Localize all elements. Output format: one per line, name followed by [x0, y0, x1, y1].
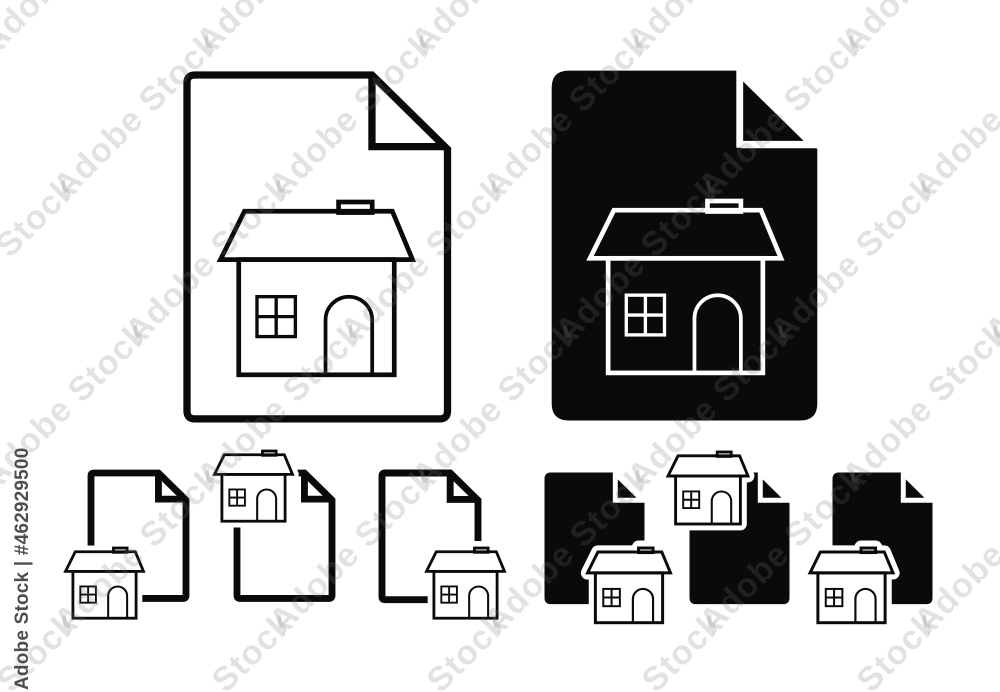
folded-corner-icon	[760, 473, 787, 500]
house-halo	[66, 547, 144, 618]
icon-file-house-outline-small-house-top-left	[215, 450, 333, 598]
house-icon	[221, 202, 413, 375]
icon-file-house-solid-large	[553, 72, 816, 419]
attribution-text: Adobe Stock | #462929500	[12, 448, 34, 690]
icon-file-house-solid-small-house-bottom-right	[545, 473, 671, 623]
icon-file-house-solid-small-house-bottom-left	[810, 473, 932, 623]
icon-file-house-solid-small-house-top-left	[668, 451, 789, 603]
icon-set-graphic	[0, 0, 1000, 692]
house-halo	[668, 451, 748, 524]
icon-file-house-outline-large	[187, 75, 448, 419]
house-halo	[810, 547, 893, 623]
folded-corner-icon	[740, 73, 812, 144]
icon-file-house-outline-small-house-bottom-right	[382, 473, 505, 618]
house-halo	[427, 547, 505, 618]
folded-corner-icon	[615, 473, 642, 500]
house-halo	[588, 547, 671, 623]
icon-file-house-outline-small-house-bottom-left	[66, 473, 187, 618]
house-halo	[215, 450, 293, 521]
folded-corner-icon	[903, 473, 930, 500]
stock-image-canvas: Adobe StockAdobe StockAdobe StockAdobe S…	[0, 0, 1000, 692]
